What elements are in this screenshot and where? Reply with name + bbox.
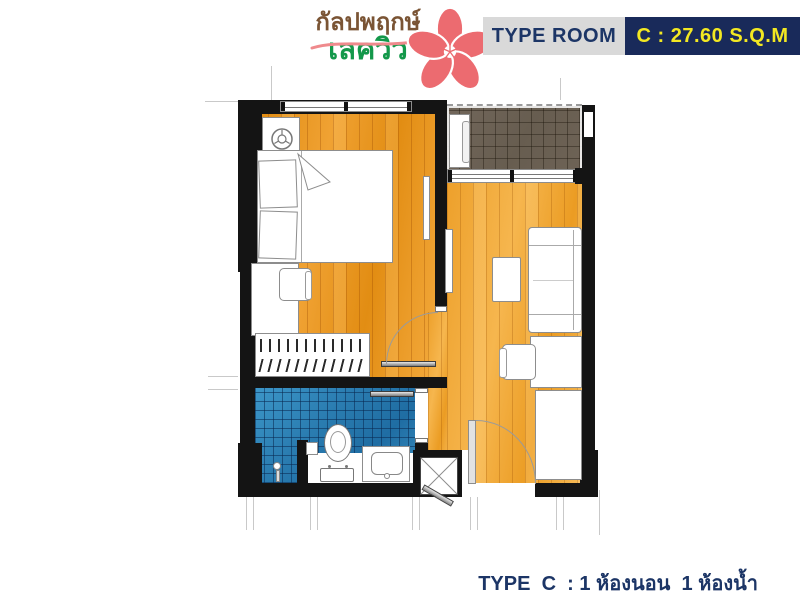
hanger-rail: [258, 359, 365, 372]
wall-bottom-left: [238, 483, 415, 497]
washing-machine: [449, 114, 470, 168]
hanger-rail: [260, 339, 364, 352]
coffee-table: [492, 257, 521, 302]
fan-icon: [270, 127, 294, 151]
balcony-sliding-door: [447, 169, 578, 183]
guide-line: [246, 497, 247, 530]
kitchen-counter: [535, 390, 582, 480]
tv-panel-bedroom: [423, 176, 430, 240]
toilet: [320, 424, 356, 482]
wall-right: [582, 105, 595, 497]
type-room-label-box: TYPE ROOM: [483, 17, 625, 55]
pillow: [258, 210, 298, 259]
shower-head-icon: [272, 462, 282, 482]
guide-line: [253, 497, 254, 530]
bathroom-door-jamb-top: [415, 388, 428, 393]
wardrobe: [255, 333, 370, 377]
guide-line: [560, 78, 561, 100]
tv-panel-living: [445, 229, 453, 293]
balcony-railing: [447, 95, 582, 106]
type-room-value-box: C : 27.60 S.Q.M: [625, 17, 800, 55]
wall-wardrobe-bathroom: [250, 377, 447, 388]
guide-line: [208, 376, 238, 377]
floor-plan-page: กัลปพฤกษ์ เลควิว TYPE ROOM C : 27.60 S.Q…: [0, 0, 800, 600]
toilet-paper-holder: [306, 442, 318, 455]
plumeria-flower-icon: [405, 6, 495, 94]
guide-line: [205, 101, 238, 102]
type-description: TYPE C : 1 ห้องนอน 1 ห้องน้ำ พื้นที่ใช้ส…: [278, 521, 758, 600]
blanket-fold: [296, 152, 334, 192]
bathroom-door-jamb-bottom: [415, 438, 428, 443]
balcony-door-jamb: [575, 168, 582, 184]
desk: [530, 336, 582, 388]
sofa: [528, 227, 582, 333]
wall-niche-right: [584, 112, 593, 137]
bedroom-window: [280, 101, 412, 112]
pillow: [258, 159, 298, 208]
bathroom-sliding-door: [370, 391, 414, 397]
sink-vanity: [362, 446, 410, 482]
guide-line: [208, 389, 238, 390]
type-description-line1: TYPE C : 1 ห้องนอน 1 ห้องน้ำ: [278, 567, 758, 599]
entrance-door-leaf: [468, 420, 476, 484]
stool: [279, 268, 312, 301]
desk-chair: [502, 344, 536, 380]
guide-line: [271, 66, 272, 100]
